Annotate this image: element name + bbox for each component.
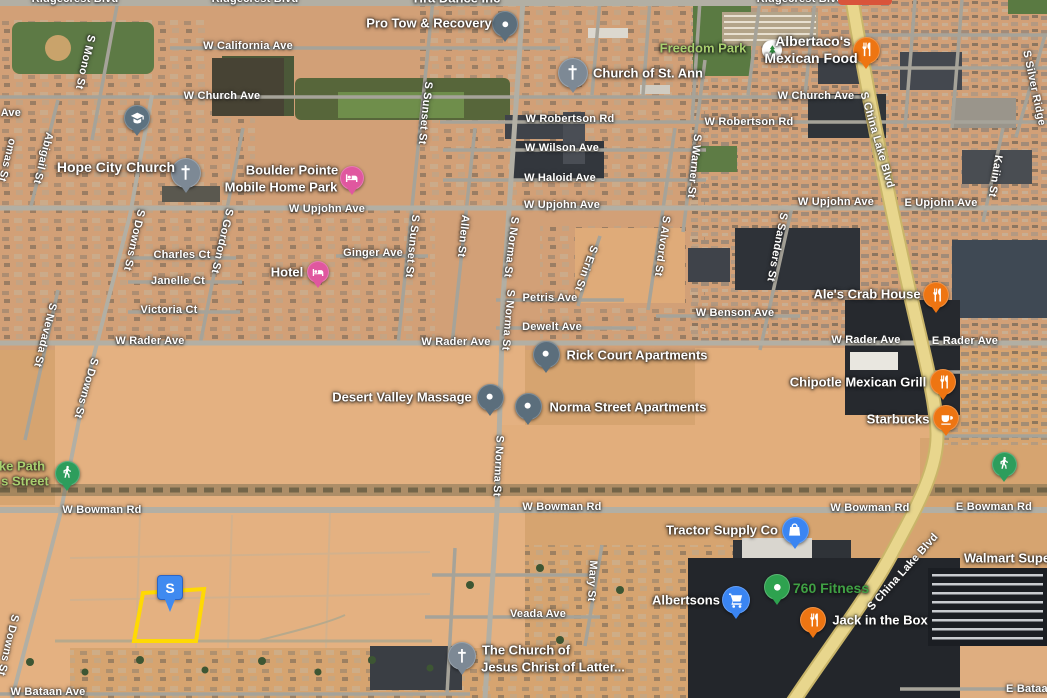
pin-tail: [568, 86, 578, 93]
top-edge-cut-poi: [838, 0, 892, 5]
pro-tow-recovery-pin-dot-icon[interactable]: [492, 11, 518, 37]
desert-valley-massage-pin-dot-icon[interactable]: [477, 384, 504, 411]
tractor-supply-co-pin-bag-icon[interactable]: [782, 517, 809, 544]
norma-street-apartments-label[interactable]: Norma Street Apartments: [549, 400, 706, 415]
hope-city-church-label[interactable]: Hope City Church: [57, 159, 175, 175]
pedestrian-path-east-pin-walker-icon[interactable]: [992, 452, 1017, 477]
ales-crab-house-pin-restaurant-icon[interactable]: [923, 282, 949, 308]
albertsons-label[interactable]: Albertsons: [652, 593, 720, 608]
pin-tail: [931, 306, 941, 313]
rick-court-apartments-pin-dot-icon[interactable]: [533, 341, 560, 368]
parcel-marker-letter: S: [165, 580, 174, 596]
lds-church-label-line1[interactable]: The Church of: [482, 643, 570, 658]
school-pin-school-icon[interactable]: [124, 105, 150, 131]
760-fitness-pin-fitness-icon[interactable]: [764, 574, 790, 600]
jack-in-the-box-pin-restaurant-icon[interactable]: [800, 607, 826, 633]
bike-path-trailhead-label-line1[interactable]: ke Path: [0, 459, 45, 474]
albertacos-mexican-food-label-line2[interactable]: Mexican Food: [764, 50, 857, 66]
parcel-marker-tail: [164, 597, 176, 612]
albertsons-pin-cart-icon[interactable]: [722, 586, 750, 614]
walmart-supercenter-label[interactable]: Walmart Supe: [964, 551, 1047, 566]
church-of-st-ann-label[interactable]: Church of St. Ann: [593, 66, 703, 81]
pin-tail: [347, 188, 357, 195]
tractor-supply-co-label[interactable]: Tractor Supply Co: [666, 523, 778, 538]
hotel-label[interactable]: Hotel: [271, 265, 304, 280]
chipotle-mexican-grill-pin-restaurant-icon[interactable]: [930, 369, 956, 395]
pin-tail: [731, 612, 741, 619]
parcel-marker[interactable]: S: [157, 575, 183, 600]
pin-tail: [772, 598, 782, 605]
pin-tail: [861, 62, 871, 69]
albertacos-mexican-food-label-line1[interactable]: Albertaco's: [775, 33, 851, 49]
pin-tail: [313, 281, 323, 288]
bike-path-trailhead-label-line2[interactable]: s Street: [1, 474, 49, 489]
pin-tail: [62, 484, 72, 491]
pin-tail: [938, 393, 948, 400]
lds-church-pin-church-icon[interactable]: [448, 642, 476, 670]
church-of-st-ann-pin-church-icon[interactable]: [558, 58, 588, 88]
pin-tail: [500, 35, 510, 42]
760-fitness-label[interactable]: 760 Fitness: [793, 580, 869, 596]
starbucks-pin-coffee-icon[interactable]: [933, 405, 959, 431]
tira-dance-inc-label[interactable]: Tira Dance Inc: [412, 0, 501, 6]
jack-in-the-box-label[interactable]: Jack in the Box: [832, 613, 927, 628]
starbucks-label[interactable]: Starbucks: [867, 412, 930, 427]
boulder-pointe-mobile-home-park-label-line1[interactable]: Boulder Pointe: [246, 163, 338, 178]
pro-tow-recovery-label[interactable]: Pro Tow & Recovery: [366, 16, 491, 31]
hotel-pin-lodging-icon[interactable]: [307, 261, 329, 283]
pin-tail: [541, 366, 551, 373]
chipotle-mexican-grill-label[interactable]: Chipotle Mexican Grill: [790, 375, 927, 390]
norma-street-apartments-pin-dot-icon[interactable]: [515, 393, 542, 420]
desert-valley-massage-label[interactable]: Desert Valley Massage: [332, 390, 471, 405]
ales-crab-house-label[interactable]: Ale's Crab House: [813, 287, 920, 302]
pin-tail: [790, 542, 800, 549]
rick-court-apartments-label[interactable]: Rick Court Apartments: [566, 348, 707, 363]
satellite-map[interactable]: Ridgecrest BlvdRidgecrest BlvdRidgecrest…: [0, 0, 1047, 698]
pin-tail: [808, 631, 818, 638]
pin-tail: [181, 186, 191, 193]
pin-tail: [941, 429, 951, 436]
bike-path-trailhead-pin-walker-icon[interactable]: [55, 461, 80, 486]
pin-tail: [523, 418, 533, 425]
pin-tail: [999, 475, 1009, 482]
freedom-park-label[interactable]: Freedom Park: [660, 41, 747, 56]
boulder-pointe-mobile-home-park-pin-lodging-icon[interactable]: [340, 166, 364, 190]
pin-tail: [485, 409, 495, 416]
pin-tail: [132, 129, 142, 136]
hope-city-church-pin-church-icon[interactable]: [171, 158, 201, 188]
lds-church-label-line2[interactable]: Jesus Christ of Latter...: [481, 660, 625, 675]
boulder-pointe-mobile-home-park-label-line2[interactable]: Mobile Home Park: [225, 180, 338, 195]
pin-tail: [457, 668, 467, 675]
